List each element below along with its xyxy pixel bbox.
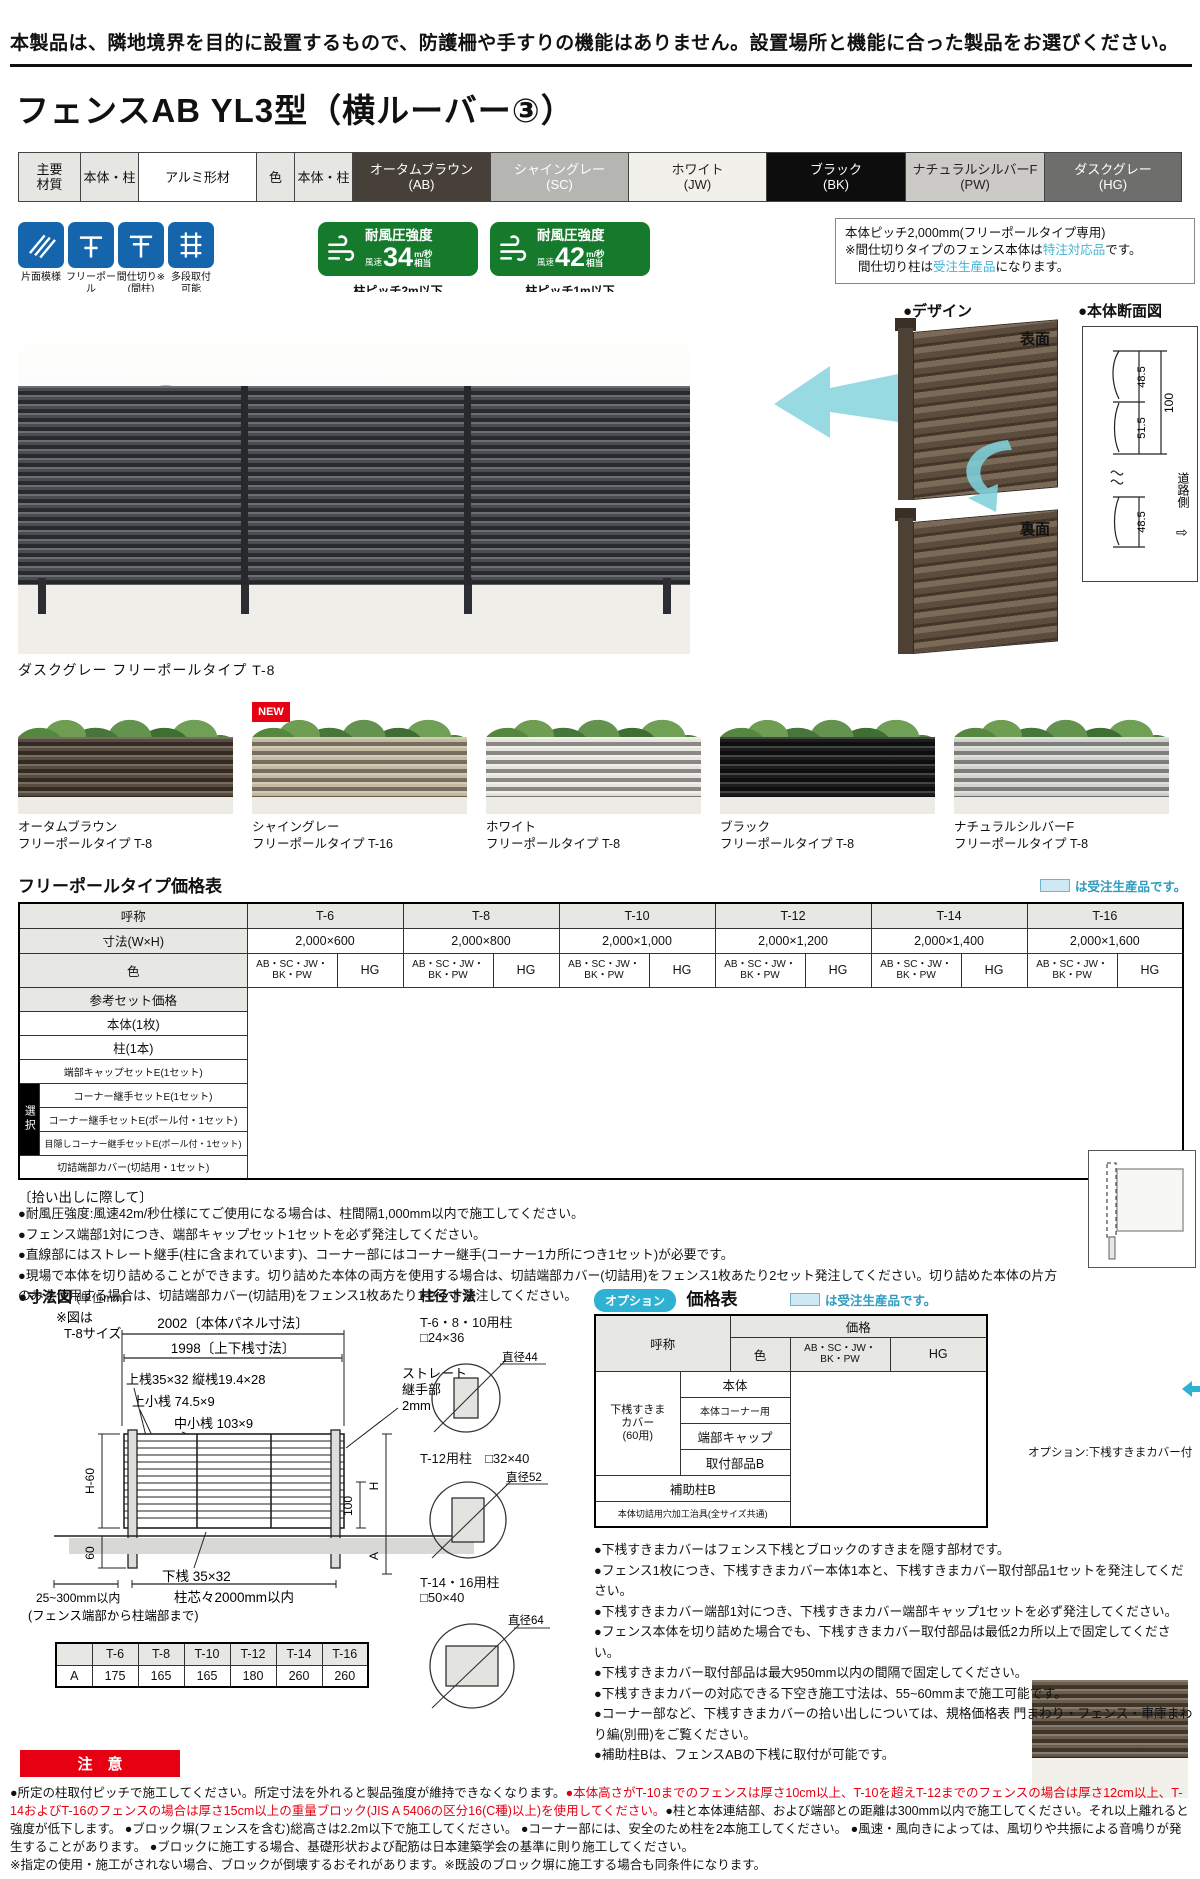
variant-white: ホワイトフリーポールタイプ T-8	[486, 702, 701, 853]
color-group-hg: HG	[890, 1337, 987, 1371]
row-label-corner-joint: コーナー継手セットE(1セット)	[39, 1083, 247, 1107]
option-price-values-area	[790, 1371, 987, 1527]
dia-label: 直径52	[506, 1470, 542, 1484]
top-rail-label: 上桟35×32 縦桟19.4×28	[126, 1372, 265, 1387]
variant-color-name: ホワイト	[486, 819, 701, 836]
color-group-hg: HG	[805, 953, 871, 987]
caution-banner: 注 意	[20, 1750, 180, 1777]
color-row-label: 色	[19, 953, 247, 987]
wind-title: 耐風圧強度	[365, 229, 433, 243]
page-title: フェンスAB YL3型（横ルーバー③）	[16, 84, 575, 132]
legend-swatch	[1040, 879, 1070, 892]
option-note: ●フェンス1枚につき、下桟すきまカバー本体1本と、下桟すきまカバー取付部品1セッ…	[594, 1561, 1194, 1602]
row-label-body: 本体(1枚)	[19, 1011, 247, 1035]
row-label-corner: 本体コーナー用	[680, 1397, 790, 1423]
color-group-hg: HG	[1117, 953, 1183, 987]
color-header: 色	[730, 1337, 790, 1371]
variant-color-name: シャイングレー	[252, 819, 467, 836]
a-value: 180	[230, 1665, 276, 1687]
wind-speed-value: 34	[383, 245, 413, 269]
color-swatch-ab: オータムブラウン(AB)	[353, 153, 491, 201]
color-group: AB・SC・JW・ BK・PW	[715, 953, 805, 987]
swatch-code: (PW)	[960, 177, 990, 192]
swatch-code: (JW)	[684, 177, 711, 192]
dim-51-5: 51.5	[1136, 417, 1148, 438]
legend-swatch	[790, 1293, 820, 1306]
a-value: 165	[184, 1665, 230, 1687]
wind-pressure-badge-42: 耐風圧強度 風速 42 m/秒相当	[490, 222, 650, 276]
variant-type: フリーポールタイプ T-16	[252, 836, 467, 853]
option-note: ●フェンス本体を切り詰めた場合でも、下桟すきまカバー取付部品は最低2カ所以上で固…	[594, 1622, 1194, 1663]
cut-end-cover-diagram	[1088, 1150, 1196, 1268]
color-group: AB・SC・JW・ BK・PW	[403, 953, 493, 987]
post-dim-size: □50×40	[420, 1590, 464, 1605]
variant-type: フリーポールタイプ T-8	[486, 836, 701, 853]
variant-fence	[18, 737, 233, 797]
materials-body-label: 本体・柱	[81, 153, 139, 201]
made-to-order-highlight: 特注対応品	[1043, 243, 1106, 257]
color-label: 色	[257, 153, 295, 201]
price-values-area	[247, 987, 1183, 1179]
option-note: ●コーナー部など、下桟すきまカバーの拾い出しについては、規格価格表 門まわり・フ…	[594, 1704, 1194, 1745]
variant-fence	[486, 737, 701, 797]
freepole-price-table: 呼称 T-6 T-8 T-10 T-12 T-14 T-16 寸法(W×H) 2…	[18, 902, 1184, 1180]
catalog-page: 本製品は、隣地境界を目的に設置するもので、防護柵や手すりの機能はありません。設置…	[0, 0, 1200, 1879]
wind-speed-value: 42	[555, 245, 585, 269]
a-value: 175	[92, 1665, 138, 1687]
row-label-body: 本体	[680, 1371, 790, 1397]
fence-post-leg	[38, 578, 46, 614]
post-pitch-label: 柱芯々2000mm以内	[174, 1590, 294, 1605]
multi-tier-icon	[168, 222, 214, 268]
option-notes: ●下桟すきまカバーはフェンス下桟とブロックのすきまを隠す部材です。 ●フェンス1…	[594, 1540, 1194, 1766]
dia-label: 直径64	[508, 1613, 544, 1627]
back-face-label: 裏面	[1020, 518, 1050, 539]
post-circle-t6: 直径44	[420, 1348, 550, 1438]
partition-icon	[118, 222, 164, 268]
legend-text: は受注生産品です。	[1075, 876, 1186, 895]
row-label-screen-corner-joint: 目隠しコーナー継手セットE(ポール付・1セット)	[39, 1131, 247, 1155]
embed-60-dim: 60	[83, 1546, 97, 1560]
size-header: T-6	[247, 903, 403, 928]
post-circle-t14: 直径64	[420, 1608, 550, 1712]
gap-cover-group-label: 下桟すきま カバー (60用)	[595, 1371, 680, 1475]
option-table-title: 価格表	[686, 1290, 737, 1309]
figure-note2: T-8サイズ	[64, 1326, 121, 1341]
color-group: AB・SC・JW・ BK・PW	[559, 953, 649, 987]
color-group: AB・SC・JW・ BK・PW	[247, 953, 337, 987]
swatch-name: ナチュラルシルバーF	[913, 162, 1038, 177]
dim-value: 2,000×1,200	[715, 928, 871, 953]
embed-depth-table: T-6 T-8 T-10 T-12 T-14 T-16 A 175 165 16…	[55, 1642, 369, 1688]
swatch-code: (SC)	[546, 177, 573, 192]
variant-fence	[720, 737, 935, 797]
new-badge: NEW	[252, 702, 290, 722]
option-note: ●下桟すきまカバーの対応できる下空き施工寸法は、55~60mmまで施工可能です。	[594, 1684, 1194, 1705]
wind-speed-label: 風速	[537, 258, 554, 269]
swatch-name: シャイングレー	[514, 162, 605, 177]
pitch-line1: 本体ピッチ2,000mm(フリーポールタイプ専用)	[845, 226, 1105, 240]
ground	[252, 797, 467, 814]
col-header: 呼称	[19, 903, 247, 928]
row-label-corner-joint-pole: コーナー継手セットE(ポール付・1セット)	[39, 1107, 247, 1131]
pickup-note: ●耐風圧強度:風速42m/秒仕様にてご使用になる場合は、柱間隔1,000mm以内…	[18, 1204, 1068, 1225]
option-price-table: 呼称 価格 色 AB・SC・JW・ BK・PW HG 下桟すきま カバー (60…	[594, 1314, 988, 1528]
color-group-hg: HG	[961, 953, 1027, 987]
pickup-note: ●直線部にはストレート継手(柱に含まれています)、コーナー部にはコーナー継手(コ…	[18, 1245, 1068, 1266]
airflow-curve-arrow-icon	[946, 436, 1026, 516]
variant-black: ブラックフリーポールタイプ T-8	[720, 702, 935, 853]
main-product-photo	[18, 292, 690, 654]
color-swatch-bk: ブラック(BK)	[767, 153, 906, 201]
dim-value: 2,000×1,000	[559, 928, 715, 953]
dim-100: 100	[1162, 393, 1176, 413]
caution-black1: ●所定の柱取付ピッチで施工してください。所定寸法を外れると製品強度が維持できなく…	[10, 1786, 566, 1800]
panel-dim-label: 2002〔本体パネル寸法〕	[157, 1316, 309, 1331]
option-note: ●下桟すきまカバー取付部品は最大950mm以内の間隔で固定してください。	[594, 1663, 1194, 1684]
post-circle-t12: 直径52	[420, 1466, 550, 1562]
option-note: ●補助柱Bは、フェンスABの下桟に取付が可能です。	[594, 1745, 1194, 1766]
wind-title: 耐風圧強度	[537, 229, 605, 243]
option-note: ●下桟すきまカバーはフェンス下桟とブロックのすきまを隠す部材です。	[594, 1540, 1194, 1561]
post-dim-size: □24×36	[420, 1330, 464, 1345]
feature-label: 片面模様	[15, 272, 67, 284]
variant-shine-gray: NEW シャイングレーフリーポールタイプ T-16	[252, 702, 467, 853]
dim-value: 2,000×600	[247, 928, 403, 953]
option-badge: オプション	[594, 1289, 676, 1312]
option-note: ●下桟すきまカバー端部1対につき、下桟すきまカバー端部キャップ1セットを必ず発注…	[594, 1602, 1194, 1623]
dim-48-5-bottom: 48.5	[1136, 511, 1148, 532]
caution-text: ●所定の柱取付ピッチで施工してください。所定寸法を外れると製品強度が維持できなく…	[10, 1784, 1192, 1874]
swatch-code: (AB)	[409, 177, 435, 192]
option-pointer-arrow-icon	[1182, 1380, 1200, 1398]
airflow-arrow-icon	[772, 352, 902, 462]
made-to-order-legend: は受注生産品です。	[1040, 876, 1186, 895]
swatch-name: ブラック	[810, 162, 862, 177]
name-header: 呼称	[595, 1315, 730, 1371]
unit-label: (単位mm)	[76, 1293, 126, 1305]
size-header: T-8	[138, 1643, 184, 1665]
swatch-name: ダスクグレー	[1074, 162, 1151, 177]
color-group: AB・SC・JW・ BK・PW	[790, 1337, 890, 1371]
swatch-name: ホワイト	[671, 162, 723, 177]
row-label-set-price: 参考セット価格	[19, 987, 247, 1011]
variant-autumn-brown: オータムブラウンフリーポールタイプ T-8	[18, 702, 233, 853]
variant-type: フリーポールタイプ T-8	[18, 836, 233, 853]
wind-pressure-badge-34: 耐風圧強度 風速 34 m/秒相当	[318, 222, 478, 276]
road-side-arrow-icon: ⇨	[1176, 524, 1188, 540]
road-side-label: 道路側	[1176, 472, 1190, 508]
price-header: 価格	[730, 1315, 987, 1337]
variant-fence	[954, 737, 1169, 797]
top-small-rail-label: 上小桟 74.5×9	[132, 1394, 215, 1409]
select-tab: 選択	[19, 1083, 39, 1155]
dia-label: 直径44	[502, 1350, 538, 1364]
color-group: AB・SC・JW・ BK・PW	[1027, 953, 1117, 987]
post-dim-label: T-14・16用柱	[420, 1572, 499, 1591]
size-header: T-6	[92, 1643, 138, 1665]
swatch-name: オータムブラウン	[370, 162, 473, 177]
color-body-label: 本体・柱	[295, 153, 353, 201]
materials-color-bar: 主要 材質 本体・柱 アルミ形材 色 本体・柱 オータムブラウン(AB) シャイ…	[18, 152, 1182, 202]
dim-label: 寸法(W×H)	[19, 928, 247, 953]
a-value: 165	[138, 1665, 184, 1687]
fence-panels	[18, 386, 690, 585]
variant-type: フリーポールタイプ T-8	[954, 836, 1169, 853]
pickup-note: ●フェンス端部1対につき、端部キャップセット1セットを必ず発注してください。	[18, 1225, 1068, 1246]
color-swatch-hg: ダスクグレー(HG)	[1045, 153, 1181, 201]
ground	[720, 797, 935, 814]
wind-icon	[498, 234, 532, 264]
size-header: T-16	[322, 1643, 368, 1665]
materials-material: アルミ形材	[139, 153, 257, 201]
post-dim-label: T-6・8・10用柱	[420, 1312, 512, 1331]
edge-dim-note: (フェンス端部から柱端部まで)	[28, 1608, 199, 1623]
size-header: T-10	[559, 903, 715, 928]
variant-color-name: ブラック	[720, 819, 935, 836]
ground	[486, 797, 701, 814]
size-header: T-10	[184, 1643, 230, 1665]
swatch-code: (BK)	[823, 177, 849, 192]
variant-natural-silver: ナチュラルシルバーFフリーポールタイプ T-8	[954, 702, 1169, 853]
ground	[954, 797, 1169, 814]
size-header: T-14	[871, 903, 1027, 928]
color-swatch-pw: ナチュラルシルバーF(PW)	[906, 153, 1045, 201]
design-post	[898, 328, 913, 500]
figure-note1: ※図は	[56, 1310, 93, 1325]
post-dim-label: T-12用柱 □32×40	[420, 1448, 529, 1467]
wind-speed-label: 風速	[365, 258, 382, 269]
fence-post	[464, 386, 471, 585]
edge-dim-label: 25~300mm以内	[36, 1591, 120, 1605]
cross-section-heading: ●本体断面図	[1078, 300, 1162, 321]
h60-dim: H-60	[83, 1468, 97, 1494]
color-group-hg: HG	[337, 953, 403, 987]
variant-fence	[252, 737, 467, 797]
dim-100: 100	[341, 1496, 355, 1516]
variant-type: フリーポールタイプ T-8	[720, 836, 935, 853]
row-label-mount-part: 取付部品B	[680, 1449, 790, 1475]
size-header: T-8	[403, 903, 559, 928]
option-badge-row: オプション 価格表	[594, 1285, 737, 1312]
design-post	[898, 518, 913, 654]
color-group: AB・SC・JW・ BK・PW	[871, 953, 961, 987]
front-face-label: 表面	[1020, 328, 1050, 349]
dim-value: 2,000×800	[403, 928, 559, 953]
dimension-figure-heading: ●寸法図 (単位mm)	[18, 1286, 126, 1307]
dim-value: 2,000×1,400	[871, 928, 1027, 953]
wind-suffix: 相当	[586, 259, 604, 268]
size-header: T-16	[1027, 903, 1183, 928]
main-photo-caption: ダスクグレー フリーポールタイプ T-8	[18, 660, 275, 680]
cross-section-diagram: 48.5 51.5 100 48.5 道路側 ⇨	[1082, 326, 1198, 582]
size-header: T-12	[715, 903, 871, 928]
h-dim: H	[367, 1482, 381, 1491]
pitch-info-box: 本体ピッチ2,000mm(フリーポールタイプ専用) ※間仕切りタイプのフェンス本…	[835, 218, 1195, 284]
row-label-aux-post: 補助柱B	[595, 1475, 790, 1501]
ground	[18, 797, 233, 814]
variant-color-name: オータムブラウン	[18, 819, 233, 836]
fence-post-leg	[663, 578, 671, 614]
dim-value: 2,000×1,600	[1027, 928, 1183, 953]
wind-suffix: 相当	[414, 259, 432, 268]
legend-text: は受注生産品です。	[825, 1290, 936, 1309]
row-label-post: 柱(1本)	[19, 1035, 247, 1059]
variant-color-name: ナチュラルシルバーF	[954, 819, 1169, 836]
a-row-label: A	[56, 1665, 92, 1687]
option-photo-caption: オプション:下桟すきまカバー付	[1028, 1444, 1192, 1460]
a-dim: A	[367, 1552, 381, 1560]
row-label-end-cap: 端部キャップセットE(1セット)	[19, 1059, 247, 1083]
post-dims-heading: 柱径寸法	[420, 1286, 476, 1306]
single-side-pattern-icon	[18, 222, 64, 268]
corner-cell	[56, 1643, 92, 1665]
row-label-cut-end-cover: 切詰端部カバー(切詰用・1セット)	[19, 1155, 247, 1179]
free-pole-icon	[68, 222, 114, 268]
color-swatch-jw: ホワイト(JW)	[629, 153, 767, 201]
a-value: 260	[322, 1665, 368, 1687]
wind-icon	[326, 234, 360, 264]
fence-post	[241, 386, 248, 585]
caution-footnote: ※指定の使用・施工がされない場合、ブロックが倒壊するおそれがあります。※既設のブ…	[10, 1856, 1192, 1874]
bottom-rail-label: 下桟 35×32	[162, 1569, 231, 1584]
swatch-code: (HG)	[1099, 177, 1127, 192]
mid-small-rail-label: 中小桟 103×9	[174, 1416, 253, 1431]
color-swatch-sc: シャイングレー(SC)	[491, 153, 629, 201]
ground	[18, 585, 690, 654]
size-header: T-14	[276, 1643, 322, 1665]
size-header: T-12	[230, 1643, 276, 1665]
color-group-hg: HG	[649, 953, 715, 987]
top-notice: 本製品は、隣地境界を目的に設置するもので、防護柵や手すりの機能はありません。設置…	[10, 28, 1192, 67]
pickup-notes-heading: 〔拾い出しに際して〕	[18, 1186, 153, 1206]
made-to-order-legend: は受注生産品です。	[790, 1290, 936, 1309]
made-to-order-highlight: 受注生産品	[933, 260, 996, 274]
price-table-title: フリーポールタイプ価格表	[18, 872, 222, 897]
row-label-jig: 本体切詰用穴加工治具(全サイズ共通)	[595, 1501, 790, 1527]
rail-dim-label: 1998〔上下桟寸法〕	[171, 1341, 296, 1356]
materials-main-label: 主要 材質	[19, 153, 81, 201]
dim-48-5-top: 48.5	[1136, 366, 1148, 387]
a-value: 260	[276, 1665, 322, 1687]
color-group-hg: HG	[493, 953, 559, 987]
row-label-end-cap: 端部キャップ	[680, 1423, 790, 1449]
